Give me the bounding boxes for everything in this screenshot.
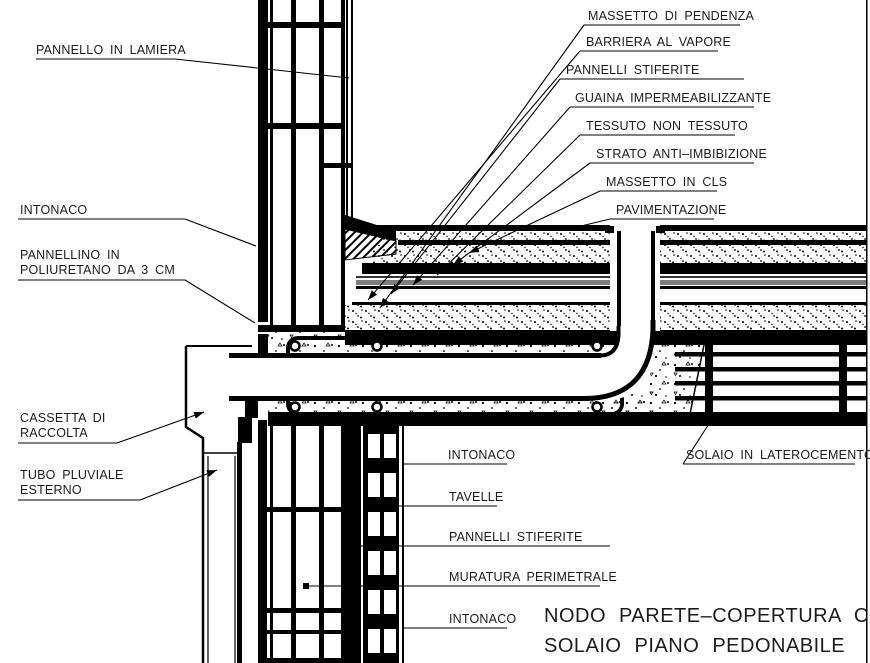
label-cassetta-line1: CASSETTA DI [20, 411, 106, 426]
label-tessuto-non-tessuto: TESSUTO NON TESSUTO [586, 119, 748, 134]
drawing-title-line2: SOLAIO PIANO PEDONABILE [544, 634, 845, 658]
label-barriera-al-vapore: BARRIERA AL VAPORE [586, 35, 731, 50]
wall-insulation [345, 420, 361, 663]
label-guaina-impermeabilizzante: GUAINA IMPERMEABILIZZANTE [575, 91, 771, 106]
label-intonaco-interno-alto: INTONACO [448, 448, 515, 463]
label-pannelli-stiferite-parete: PANNELLI STIFERITE [449, 530, 582, 545]
label-pannelli-stiferite-copertura: PANNELLI STIFERITE [566, 63, 699, 78]
cad-detail-sheet: PANNELLO IN LAMIERA MASSETTO DI PENDENZA… [0, 0, 870, 663]
lamiera-panel [346, 0, 348, 222]
sheet-border [866, 0, 868, 663]
roof-layers [345, 225, 866, 345]
label-tubo-line1: TUBO PLUVIALE [20, 468, 124, 483]
lower-wall [258, 420, 404, 663]
label-tavelle: TAVELLE [449, 490, 503, 505]
label-intonaco-esterno: INTONACO [20, 203, 87, 218]
label-massetto-in-cls: MASSETTO IN CLS [606, 175, 727, 190]
leader-end-square [303, 583, 309, 589]
label-pannellino-line2: POLIURETANO DA 3 CM [20, 263, 175, 278]
label-pannello-in-lamiera: PANNELLO IN LAMIERA [36, 43, 186, 58]
label-strato-anti-imbibizione: STRATO ANTI–IMBIBIZIONE [596, 147, 767, 162]
label-intonaco-interno-basso: INTONACO [449, 612, 516, 627]
label-muratura-perimetrale: MURATURA PERIMETRALE [449, 570, 617, 585]
drawing-title-line1: NODO PARETE–COPERTURA CON [544, 604, 870, 628]
label-tubo-line2: ESTERNO [20, 483, 82, 498]
label-solaio-in-laterocemento: SOLAIO IN LATEROCEMENTO [686, 448, 870, 463]
label-massetto-di-pendenza: MASSETTO DI PENDENZA [588, 9, 754, 24]
label-pannellino-line1: PANNELLINO IN [20, 248, 120, 263]
label-cassetta-line2: RACCOLTA [20, 426, 88, 441]
label-pavimentazione: PAVIMENTAZIONE [616, 203, 726, 218]
